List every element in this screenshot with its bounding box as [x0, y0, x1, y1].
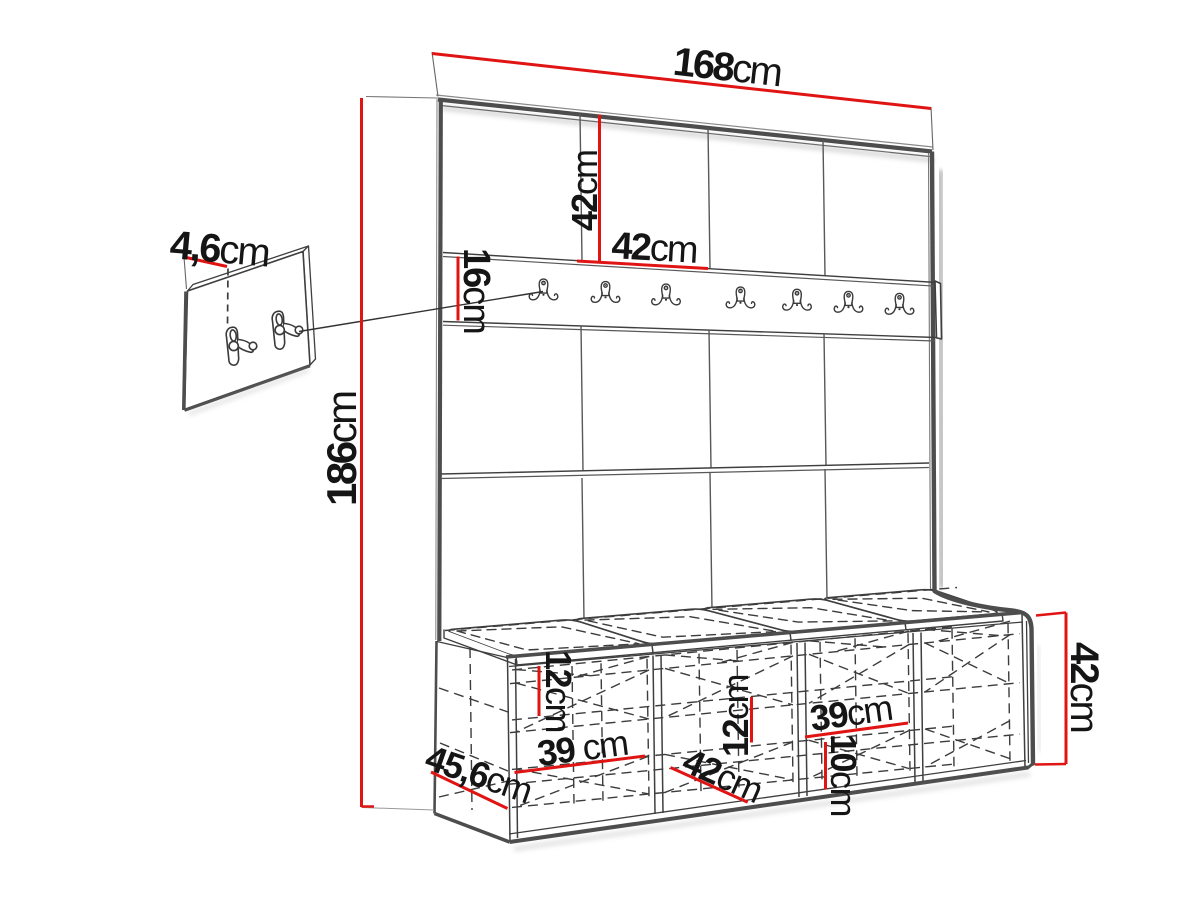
svg-text:12cm: 12cm: [538, 650, 579, 732]
svg-text:186cm: 186cm: [318, 392, 365, 506]
svg-text:16cm: 16cm: [455, 248, 497, 333]
svg-text:12cm: 12cm: [715, 675, 756, 757]
svg-text:10cm: 10cm: [823, 734, 864, 816]
svg-text:42cm: 42cm: [610, 225, 697, 272]
svg-text:42cm: 42cm: [1062, 642, 1106, 732]
svg-text:42cm: 42cm: [564, 151, 605, 231]
svg-text:4,6cm: 4,6cm: [168, 223, 270, 275]
